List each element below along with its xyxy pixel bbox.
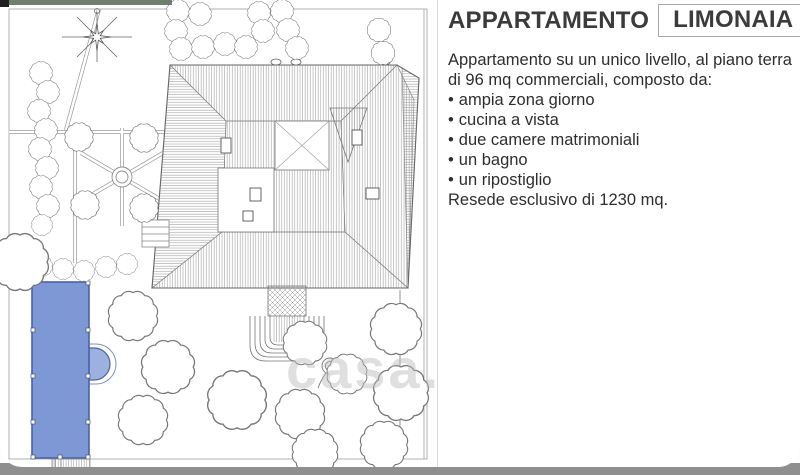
site-plan-drawing	[0, 0, 436, 467]
info-panel: APPARTAMENTO LIMONAIA Appartamento su un…	[437, 0, 800, 467]
site-plan	[0, 0, 436, 467]
compass-rose-icon	[62, 9, 132, 63]
bullet-icon: •	[448, 131, 454, 149]
feature-item: •cucina a vista	[448, 110, 792, 130]
patio	[218, 168, 274, 232]
chimney	[366, 188, 379, 199]
title-highlight-box: LIMONAIA	[658, 4, 800, 37]
feature-item: •ampia zona giorno	[448, 90, 792, 110]
chimney	[221, 138, 231, 153]
swimming-pool	[31, 281, 116, 467]
chimney	[352, 130, 362, 145]
porch-steps	[142, 220, 169, 247]
courtyard	[275, 121, 329, 170]
title-main: APPARTAMENTO	[448, 7, 649, 35]
bullet-icon: •	[448, 151, 454, 169]
top-accent-bar	[0, 0, 172, 5]
top-corner-mark	[0, 0, 9, 7]
feature-item: •un bagno	[448, 150, 792, 170]
listing-title: APPARTAMENTO LIMONAIA	[448, 4, 792, 37]
chimney	[250, 188, 261, 201]
bullet-icon: •	[448, 111, 454, 129]
bullet-icon: •	[448, 171, 454, 189]
house-roof	[142, 59, 419, 288]
feature-item: •un ripostiglio	[448, 170, 792, 190]
chimney	[243, 211, 253, 221]
pool-deck	[52, 459, 90, 467]
resede-note: Resede esclusivo di 1230 mq.	[448, 190, 792, 210]
listing-description: Appartamento su un unico livello, al pia…	[448, 50, 792, 210]
trellis	[268, 286, 306, 316]
feature-item: •due camere matrimoniali	[448, 130, 792, 150]
description-line: di 96 mq commerciali, composto da:	[448, 70, 792, 90]
bullet-icon: •	[448, 91, 454, 109]
description-line: Appartamento su un unico livello, al pia…	[448, 50, 792, 70]
roof-vents	[271, 59, 390, 65]
listing-page: casa.it APPARTAMENTO LIMONAIA Appartamen…	[0, 0, 800, 467]
